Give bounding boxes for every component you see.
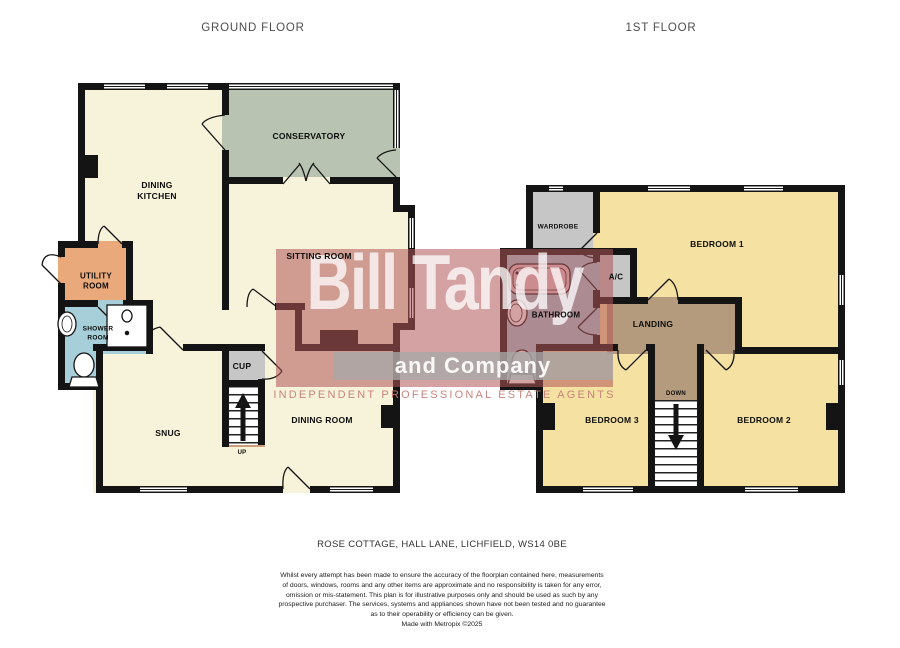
room-label-utility-room: UTILITY <box>80 272 112 281</box>
window <box>838 275 845 305</box>
window <box>104 83 145 90</box>
room-label-shower-room: ROOM <box>87 335 108 342</box>
property-address: ROSE COTTAGE, HALL LANE, LICHFIELD, WS14… <box>142 539 742 550</box>
disclaimer-line: prospective purchaser. The services, sys… <box>142 600 742 610</box>
room-label-landing: LANDING <box>633 319 673 329</box>
wall-segment <box>536 486 583 493</box>
first-floor-title: 1ST FLOOR <box>626 22 697 34</box>
wall-segment <box>93 344 150 351</box>
window <box>583 486 633 493</box>
room-label-dining-kitchen: DINING <box>141 180 172 190</box>
wall-segment <box>697 344 704 493</box>
wall-segment <box>630 248 637 304</box>
floorplan-page: GROUND FLOOR 1ST FLOOR <box>0 0 900 648</box>
wall-segment <box>96 347 103 390</box>
window <box>745 486 798 493</box>
wall-segment <box>222 150 229 310</box>
wall-segment <box>563 185 648 192</box>
wall-segment <box>310 486 330 493</box>
window-conservatory-glazing <box>393 90 400 148</box>
wall-segment <box>735 297 742 354</box>
room-label-snug: SNUG <box>155 428 181 438</box>
window-conservatory-glazing <box>229 83 393 90</box>
wall-segment <box>783 185 845 192</box>
chimney-breast <box>826 403 838 430</box>
window <box>744 185 783 192</box>
wall-segment <box>187 486 283 493</box>
room-label-wardrobe: WARDROBE <box>538 224 579 231</box>
wall-segment <box>330 177 400 184</box>
wall-segment <box>648 344 655 493</box>
chimney-breast <box>381 405 393 428</box>
wall-segment <box>258 379 265 447</box>
room-label-conservatory: CONSERVATORY <box>273 131 346 141</box>
disclaimer-line: of doors, windows, rooms and any other i… <box>142 581 742 591</box>
wall-segment <box>393 83 400 90</box>
room-label-dining-kitchen: KITCHEN <box>137 191 177 201</box>
room-label-utility-room: ROOM <box>83 282 109 291</box>
wall-segment <box>593 185 600 233</box>
wall-segment <box>58 241 65 257</box>
room-label-dining-room: DINING ROOM <box>291 415 352 425</box>
window <box>140 486 187 493</box>
stair-edge <box>229 445 265 447</box>
wall-segment <box>222 344 229 447</box>
wall-segment <box>838 385 845 493</box>
room-label-bedroom1: BEDROOM 1 <box>690 239 744 249</box>
room-label-cupboard: CUP <box>233 361 252 371</box>
window <box>330 486 373 493</box>
wall-segment <box>96 486 140 493</box>
window <box>838 360 845 385</box>
wall-segment <box>58 300 98 307</box>
window <box>648 185 690 192</box>
disclaimer-line: Made with Metropix ©2025 <box>142 620 742 630</box>
room-label-airing-cupboard: A/C <box>609 273 624 282</box>
wall-segment <box>145 83 167 90</box>
stairs-down <box>655 400 697 486</box>
disclaimer-line: as to their operability or efficiency ca… <box>142 610 742 620</box>
wall-segment <box>690 185 744 192</box>
wall-segment <box>58 307 65 383</box>
wall-segment <box>678 297 742 304</box>
chimney-breast <box>543 403 555 430</box>
wall-segment <box>838 185 845 275</box>
stairs-up-label: UP <box>238 450 247 456</box>
watermark-tagline: INDEPENDENT PROFESSIONAL ESTATE AGENTS <box>272 389 617 401</box>
window <box>549 185 563 192</box>
stairs-down-label: DOWN <box>666 391 686 397</box>
wall-segment <box>735 347 845 354</box>
wall-segment <box>78 83 85 248</box>
room-label-sitting-room: SITTING ROOM <box>286 251 351 261</box>
watermark-brand-suffix: and Company <box>333 352 613 380</box>
disclaimer-line: omission or mis-statement. This plan is … <box>142 591 742 601</box>
wall-segment <box>222 83 229 115</box>
disclaimer-line: Whilst every attempt has been made to en… <box>142 571 742 581</box>
wall-segment <box>222 177 283 184</box>
wall-segment <box>96 386 103 493</box>
chimney-breast <box>85 155 98 178</box>
stairs-up <box>229 386 258 445</box>
wall-segment <box>126 241 133 307</box>
room-label-bedroom2: BEDROOM 2 <box>737 415 791 425</box>
disclaimer-text: Whilst every attempt has been made to en… <box>142 571 742 630</box>
room-label-shower-room: SHOWER <box>83 326 114 333</box>
room-label-bathroom: BATHROOM <box>532 311 581 320</box>
room-label-bedroom3: BEDROOM 3 <box>585 415 639 425</box>
ground-floor-title: GROUND FLOOR <box>201 22 305 34</box>
window <box>167 83 208 90</box>
wall-segment <box>408 205 415 218</box>
